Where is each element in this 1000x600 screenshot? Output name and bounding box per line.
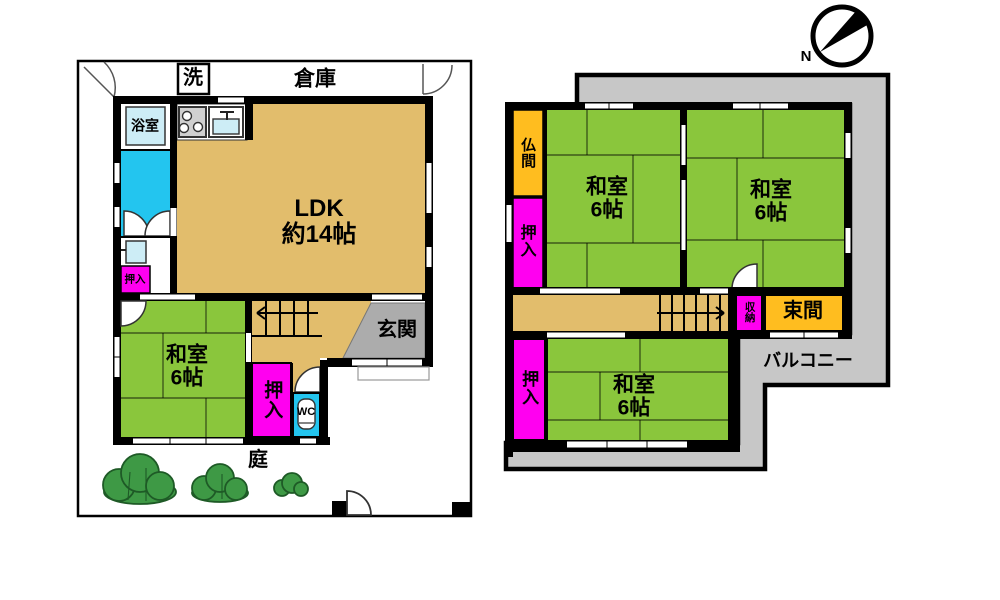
garden-label: 庭 bbox=[248, 450, 268, 472]
washitsu-nw-line1: 和室 bbox=[586, 176, 628, 199]
shuunou-label: 収納 bbox=[743, 302, 754, 323]
ldk-label-line1: LDK bbox=[282, 196, 357, 222]
closet-2f-south-label: 押入 bbox=[519, 370, 537, 406]
kitchen-sink-basin-icon bbox=[213, 119, 239, 134]
laundry-label: 洗 bbox=[183, 68, 203, 90]
washitsu-s-line2: 6帖 bbox=[613, 397, 655, 420]
washitsu-nw-label: 和室 6帖 bbox=[586, 176, 628, 221]
house-2f bbox=[505, 102, 852, 457]
ldk-label-line2: 約14帖 bbox=[282, 222, 357, 248]
burner-icon bbox=[194, 123, 203, 132]
burner-icon bbox=[183, 112, 192, 121]
burner-icon bbox=[180, 124, 189, 133]
closet-small-label: 押入 bbox=[125, 274, 146, 285]
bush-icon bbox=[225, 478, 247, 500]
washitsu-1f-label: 和室 6帖 bbox=[166, 344, 208, 389]
entrance-label: 玄関 bbox=[377, 320, 417, 342]
washitsu-s-line1: 和室 bbox=[613, 374, 655, 397]
bush-icon bbox=[294, 482, 308, 496]
balcony-label: バルコニー bbox=[763, 351, 853, 370]
closet-2f-north-label: 押入 bbox=[517, 224, 534, 258]
compass-icon bbox=[813, 7, 871, 65]
washitsu-1f-line1: 和室 bbox=[166, 344, 208, 367]
washitsu-ne-line2: 6帖 bbox=[750, 202, 792, 225]
closet-1f-label: 押入 bbox=[261, 380, 282, 420]
washitsu-1f-line2: 6帖 bbox=[166, 367, 208, 390]
gate-post-left bbox=[332, 501, 347, 516]
washitsu-s-label: 和室 6帖 bbox=[613, 374, 655, 419]
ldk-label: LDK 約14帖 bbox=[282, 196, 357, 248]
washbasin-icon bbox=[126, 241, 146, 263]
floor-plan-canvas: 倉庫 洗 浴室 LDK 約14帖 押入 和室 6帖 押入 WC 玄関 庭 仏間 … bbox=[0, 0, 1000, 600]
bush-icon bbox=[146, 472, 174, 500]
tokonoma-label: 束間 bbox=[783, 301, 823, 323]
butsuma-label: 仏間 bbox=[519, 137, 535, 169]
storage-top-label: 倉庫 bbox=[294, 69, 336, 92]
wc-label: WC bbox=[297, 407, 315, 419]
washitsu-ne-line1: 和室 bbox=[750, 179, 792, 202]
washitsu-ne-label: 和室 6帖 bbox=[750, 179, 792, 224]
floor-plan-drawing bbox=[0, 0, 1000, 600]
compass-north-label: N bbox=[801, 49, 812, 65]
gate-post-right bbox=[452, 502, 471, 516]
washitsu-nw-line2: 6帖 bbox=[586, 199, 628, 222]
bath-label: 浴室 bbox=[131, 118, 159, 133]
